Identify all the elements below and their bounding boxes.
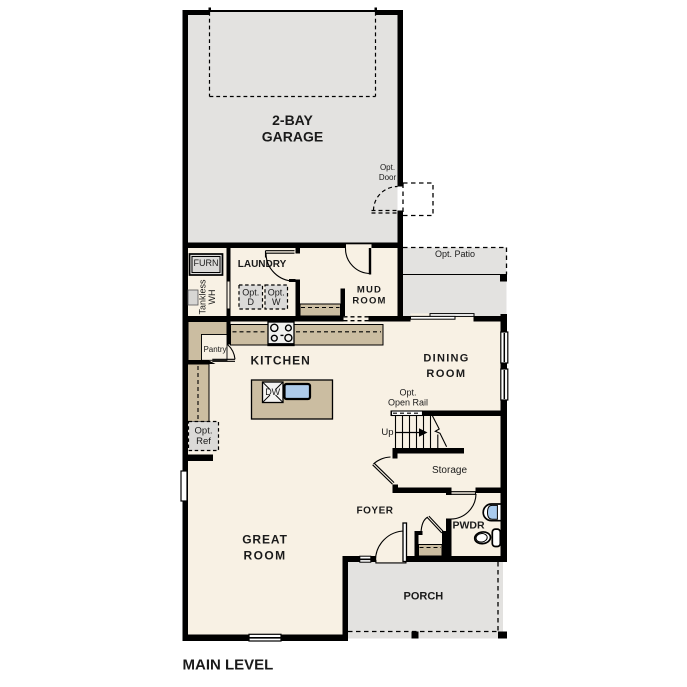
svg-text:Opt.: Opt.	[195, 426, 213, 437]
svg-text:Door: Door	[379, 173, 397, 182]
svg-text:GREAT: GREAT	[242, 533, 288, 547]
svg-text:MUD: MUD	[357, 285, 382, 296]
svg-text:LAUNDRY: LAUNDRY	[238, 259, 287, 270]
svg-text:MAIN LEVEL: MAIN LEVEL	[183, 657, 274, 674]
svg-text:FOYER: FOYER	[357, 506, 394, 517]
svg-text:2-BAY: 2-BAY	[272, 112, 313, 128]
svg-text:GARAGE: GARAGE	[262, 129, 323, 145]
svg-text:Storage: Storage	[432, 465, 467, 476]
svg-text:Opt.: Opt.	[242, 288, 259, 298]
svg-text:Opt.: Opt.	[380, 163, 395, 172]
svg-text:ROOM: ROOM	[352, 296, 386, 307]
svg-text:Up: Up	[381, 427, 393, 438]
svg-text:Opt.: Opt.	[268, 288, 285, 298]
svg-text:DW: DW	[265, 387, 280, 397]
svg-text:ROOM: ROOM	[244, 549, 287, 563]
svg-text:PWDR: PWDR	[452, 519, 484, 531]
svg-text:FURN: FURN	[194, 258, 219, 268]
svg-text:Opt.: Opt.	[399, 388, 416, 398]
svg-text:Ref: Ref	[196, 436, 211, 447]
svg-text:W: W	[272, 297, 281, 307]
svg-text:ROOM: ROOM	[426, 368, 466, 380]
svg-text:Open Rail: Open Rail	[388, 397, 428, 407]
svg-text:D: D	[248, 297, 255, 307]
svg-text:Opt. Patio: Opt. Patio	[435, 249, 475, 259]
svg-text:Pantry: Pantry	[203, 345, 226, 354]
svg-text:KITCHEN: KITCHEN	[251, 354, 311, 368]
svg-text:DINING: DINING	[423, 353, 469, 365]
svg-text:PORCH: PORCH	[404, 590, 444, 602]
